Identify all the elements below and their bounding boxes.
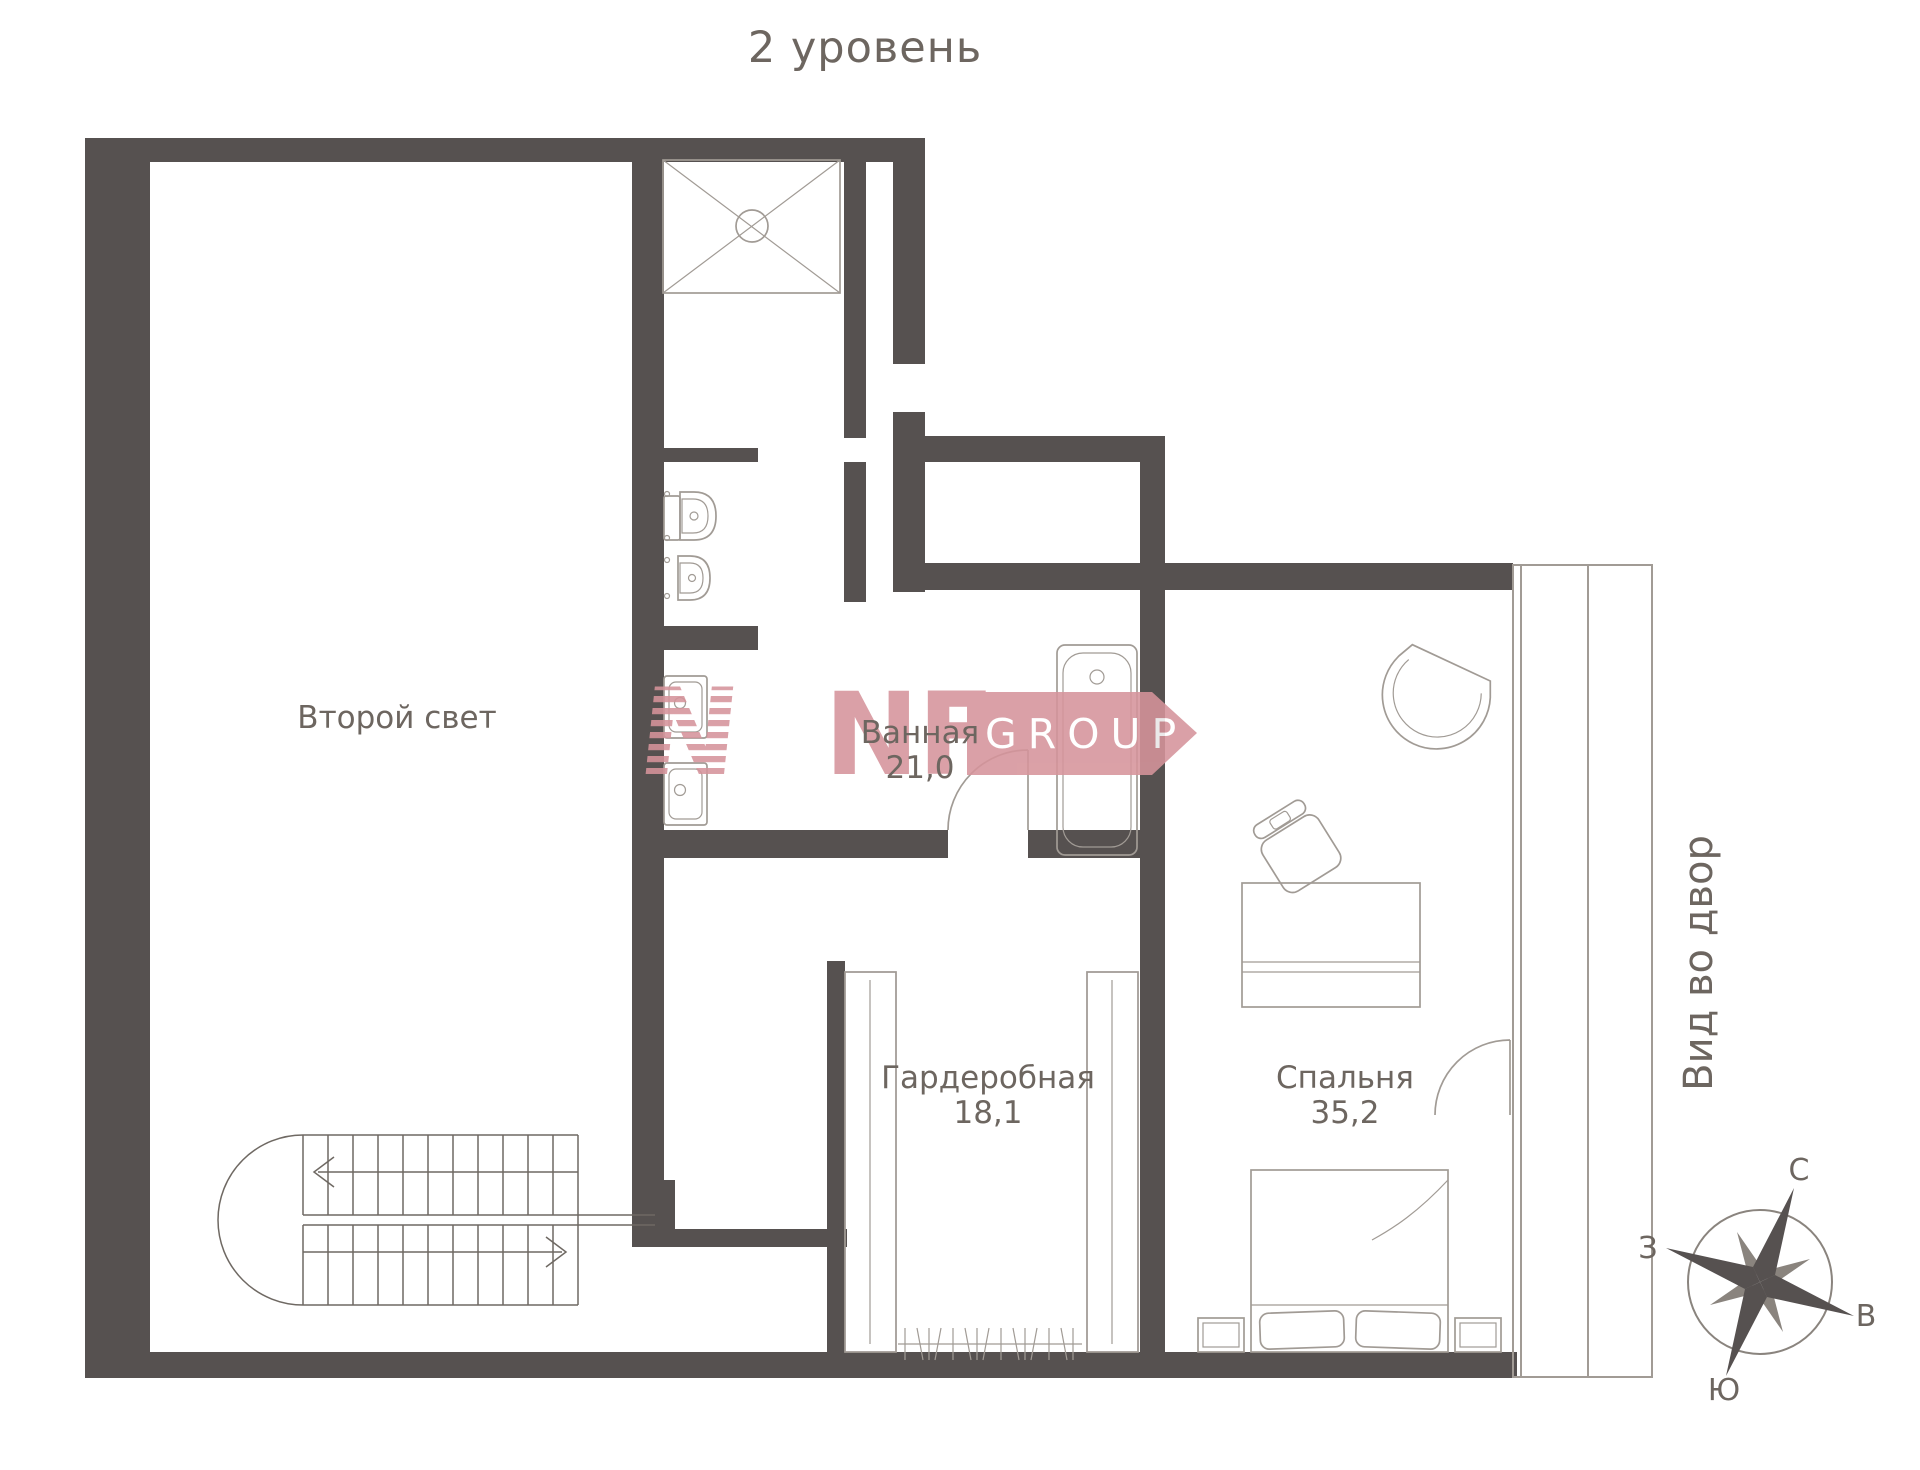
nightstand-left [1198, 1318, 1244, 1352]
floor-plan-svg: N NF GROUP 2 уровень Второй свет Ванная … [0, 0, 1920, 1470]
floor-plan-page: N NF GROUP 2 уровень Второй свет Ванная … [0, 0, 1920, 1470]
compass-south: Ю [1708, 1373, 1740, 1408]
bed [1251, 1170, 1448, 1352]
room-area-bedroom: 35,2 [1310, 1095, 1379, 1131]
view-annotation: Вид во двор [1676, 835, 1722, 1091]
armchair [1365, 640, 1501, 767]
room-area-wardrobe: 18,1 [953, 1095, 1022, 1131]
terrace-door [1435, 1040, 1510, 1115]
desk [1242, 883, 1420, 1007]
nightstand-right [1455, 1318, 1501, 1352]
logo-group: GROUP [985, 710, 1187, 758]
bidet [665, 556, 711, 600]
stairs-down-arrow [303, 1237, 566, 1267]
compass-west: З [1638, 1231, 1657, 1266]
toilet [664, 492, 716, 541]
staircase [218, 1135, 655, 1305]
compass-east: В [1856, 1299, 1877, 1334]
room-label-second-light: Второй свет [297, 700, 496, 736]
compass-rose: С В Ю З [1638, 1153, 1876, 1408]
room-label-bedroom: Спальня [1276, 1060, 1414, 1096]
wardrobe-shelves [845, 972, 1138, 1352]
logo-mark: N [632, 663, 747, 803]
shower-tray [663, 160, 840, 293]
page-title: 2 уровень [748, 23, 982, 73]
room-area-bathroom: 21,0 [885, 750, 954, 786]
room-label-wardrobe: Гардеробная [881, 1060, 1095, 1096]
compass-north: С [1789, 1153, 1810, 1188]
desk-chair [1248, 796, 1345, 897]
window-band [1513, 565, 1652, 1377]
walls [85, 138, 1517, 1378]
room-label-bathroom: Ванная [861, 715, 979, 751]
